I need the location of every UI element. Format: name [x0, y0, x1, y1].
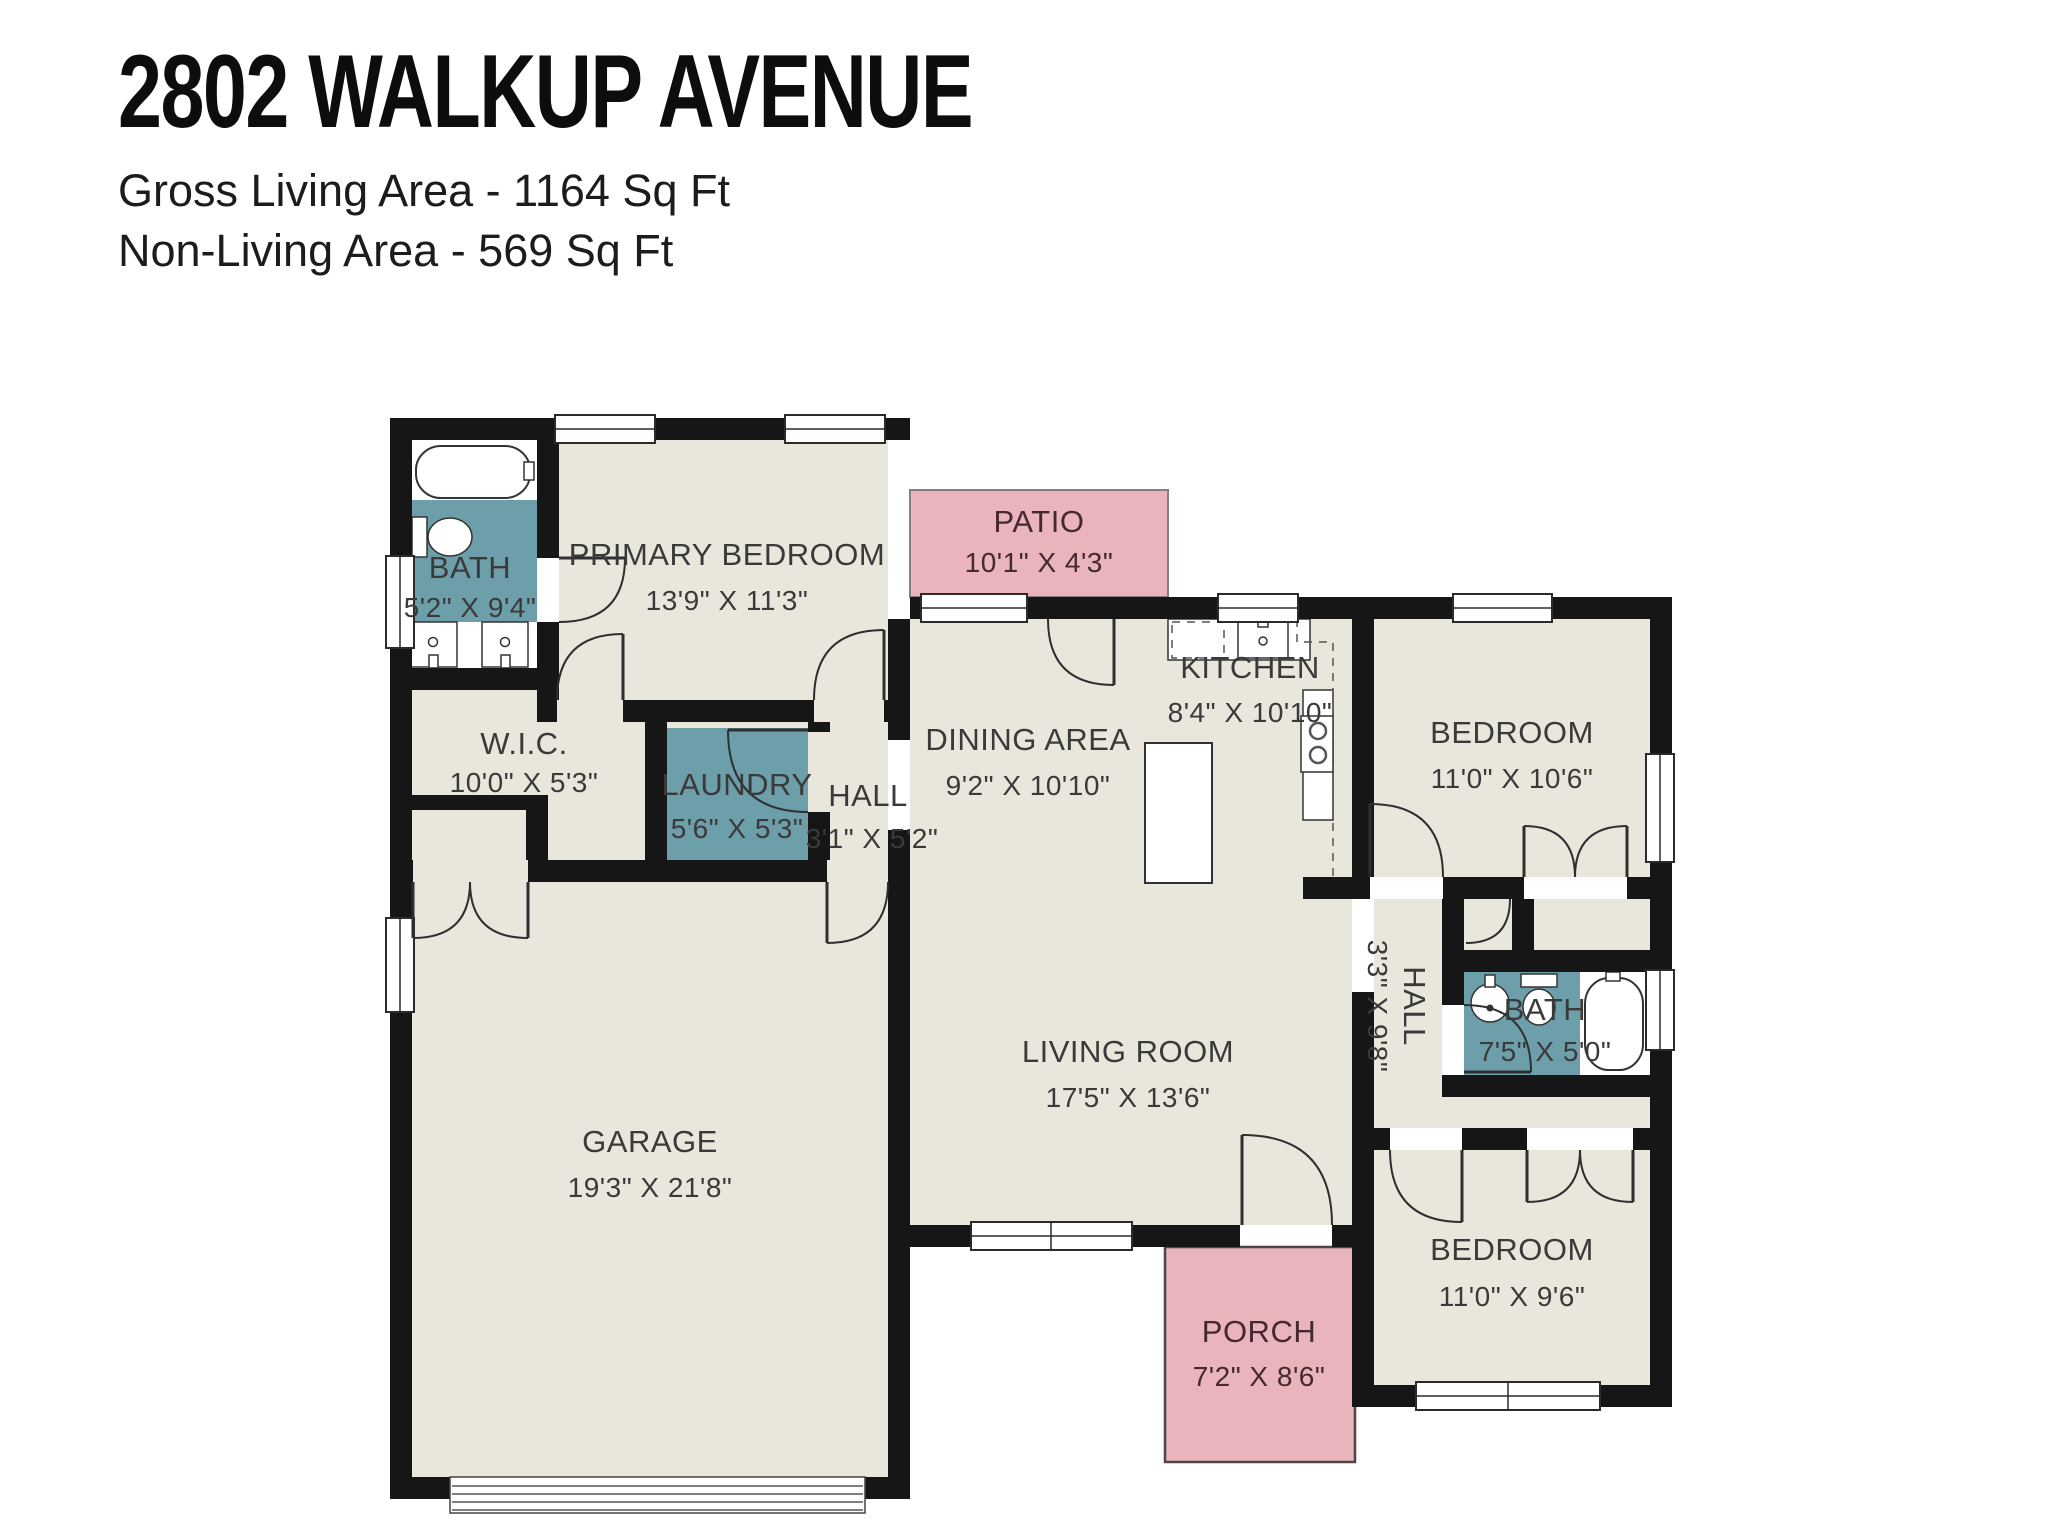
floor-plan: BATH 5'2" X 9'4" PRIMARY BEDROOM 13'9" X…: [0, 0, 2048, 1536]
room-label: BEDROOM: [1430, 715, 1594, 750]
room-dims: 17'5" X 13'6": [1046, 1082, 1211, 1113]
room-label: KITCHEN: [1180, 650, 1320, 685]
room-dims: 9'2" X 10'10": [946, 770, 1111, 801]
room-label: PATIO: [994, 504, 1085, 539]
room-dims: 3'3" X 9'8": [1362, 940, 1393, 1073]
window-icon: [971, 1222, 1132, 1250]
room-dims: 10'1" X 4'3": [965, 547, 1114, 578]
room-label: W.I.C.: [480, 726, 567, 761]
floor-plan-page: 2802 WALKUP AVENUE Gross Living Area - 1…: [0, 0, 2048, 1536]
window-icon: [1453, 594, 1552, 622]
porch-area: [1165, 1247, 1355, 1462]
room-label: GARAGE: [582, 1124, 718, 1159]
bathtub-icon: [416, 446, 534, 498]
room-dims: 13'9" X 11'3": [646, 585, 809, 616]
room-dims: 7'2" X 8'6": [1193, 1361, 1326, 1392]
room-label: LIVING ROOM: [1022, 1034, 1234, 1069]
room-label: HALL: [828, 778, 908, 813]
room-dims: 3'1" X 5'2": [806, 823, 939, 854]
room-dims: 8'4" X 10'10": [1168, 697, 1333, 728]
room-dims: 7'5" X 5'0": [1479, 1036, 1612, 1067]
room-dims: 19'3" X 21'8": [568, 1172, 733, 1203]
room-dims: 10'0" X 5'3": [450, 767, 599, 798]
room-label: LAUNDRY: [661, 767, 812, 802]
room-dims: 11'0" X 9'6": [1439, 1281, 1586, 1312]
room-label: PRIMARY BEDROOM: [569, 537, 885, 572]
room-label: BEDROOM: [1430, 1232, 1594, 1267]
window-icon: [1646, 970, 1674, 1050]
room-label: BATH: [1504, 992, 1586, 1027]
window-icon: [785, 415, 885, 443]
window-icon: [921, 594, 1027, 622]
room-dims: 5'2" X 9'4": [404, 592, 537, 623]
window-icon: [1646, 754, 1674, 862]
window-icon: [1416, 1382, 1600, 1410]
room-label: BATH: [429, 550, 511, 585]
window-icon: [1218, 594, 1298, 622]
garage-door: [450, 1477, 865, 1513]
window-icon: [386, 918, 414, 1012]
room-label: DINING AREA: [925, 722, 1130, 757]
room-dims: 5'6" X 5'3": [671, 813, 804, 844]
island-counter: [1145, 743, 1212, 883]
sink-icon: [482, 622, 528, 668]
window-icon: [555, 415, 655, 443]
room-label: PORCH: [1202, 1314, 1316, 1349]
room-dims: 11'0" X 10'6": [1431, 763, 1594, 794]
sink-icon: [410, 622, 457, 668]
room-label: HALL: [1397, 966, 1432, 1046]
